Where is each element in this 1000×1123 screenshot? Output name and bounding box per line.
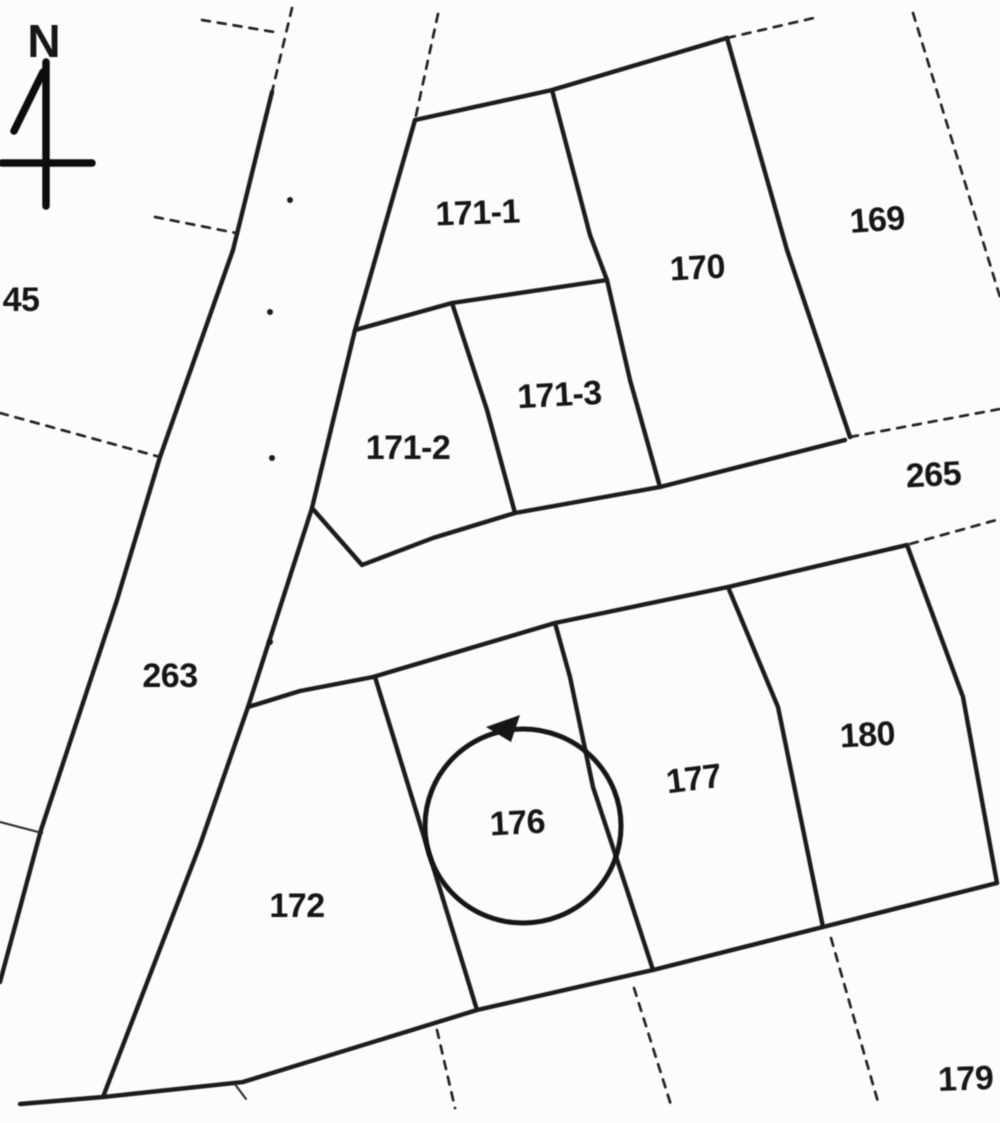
parcel-label-169: 169 xyxy=(848,199,906,241)
road-263-label: 263 xyxy=(142,657,197,695)
survey-dot xyxy=(267,309,273,315)
dash-road-263-right-top xyxy=(415,14,438,120)
dash-road-263-left-top xyxy=(272,8,292,92)
road-263-right-edge xyxy=(103,120,415,1097)
dash-parcel-45-boundary xyxy=(0,413,160,457)
road-265-lower-edge xyxy=(248,545,907,707)
parcel-label-179: 179 xyxy=(937,1059,994,1099)
road-263-left-edge xyxy=(0,92,272,982)
survey-dot xyxy=(287,197,293,203)
dash-branch-mid xyxy=(155,217,236,233)
map-canvas: N 45 171-1 170 169 171-3 171-2 265 263 1… xyxy=(0,0,1000,1123)
survey-dot xyxy=(267,639,273,645)
parcel-label-171-2: 171-2 xyxy=(366,429,450,467)
cadastral-map-page: N 45 171-1 170 169 171-3 171-2 265 263 1… xyxy=(0,0,1000,1123)
dash-road-265-upper-east xyxy=(850,409,1000,437)
parcel-label-171-3: 171-3 xyxy=(516,374,602,416)
parcel-label-180: 180 xyxy=(839,715,896,756)
dash-ridge-continuation xyxy=(727,17,818,38)
parcel-171-1-top-edge xyxy=(415,38,727,120)
parcel-171-1-bottom-edge xyxy=(355,280,607,330)
survey-ticks xyxy=(0,822,246,1099)
parcel-label-45: 45 xyxy=(3,281,40,319)
dash-branch-top xyxy=(202,20,280,33)
north-arrow-flag xyxy=(14,72,43,131)
highlight-circle-arrowhead xyxy=(486,715,520,742)
dash-road-265-lower-east xyxy=(910,519,1000,544)
survey-dot xyxy=(269,455,275,461)
north-label: N xyxy=(27,15,60,67)
parcel-label-172: 172 xyxy=(269,887,324,925)
tick-left-edge xyxy=(0,822,42,833)
parcel-180-east-edge xyxy=(907,545,997,883)
road-265-label: 265 xyxy=(905,455,962,496)
north-arrow xyxy=(2,62,92,206)
tick-bottom-boundary xyxy=(234,1083,246,1099)
parcel-label-177: 177 xyxy=(664,757,723,801)
block-bottom-boundary xyxy=(20,883,997,1104)
boundary-171-170-east xyxy=(552,90,660,487)
parcel-label-176: 176 xyxy=(489,803,546,844)
dash-below-172-176 xyxy=(437,1030,455,1108)
boundary-171-2-171-3 xyxy=(452,303,515,513)
parcel-label-171-1: 171-1 xyxy=(435,193,521,234)
boundary-176-177 xyxy=(555,623,653,970)
dash-below-176-177 xyxy=(634,988,671,1105)
dash-parcel-169-east xyxy=(913,13,1000,297)
dash-below-177-180 xyxy=(831,938,878,1102)
boundary-170-169 xyxy=(727,38,850,437)
boundary-177-180 xyxy=(728,587,823,927)
parcel-label-170: 170 xyxy=(669,248,726,289)
